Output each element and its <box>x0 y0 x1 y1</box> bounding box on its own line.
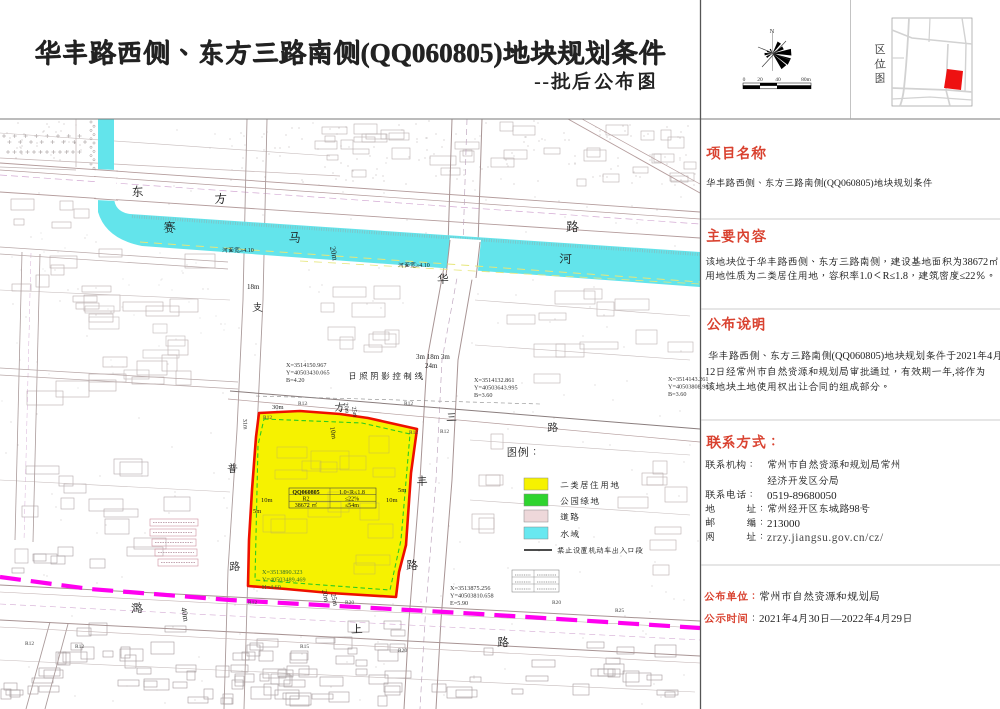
svg-text:R12: R12 <box>404 401 413 407</box>
svg-text:38672 ㎡: 38672 ㎡ <box>295 502 318 509</box>
svg-text:水域: 水域 <box>560 529 580 539</box>
svg-text:3m 18m 3m: 3m 18m 3m <box>416 353 450 361</box>
svg-text:公园绿地: 公园绿地 <box>560 496 600 506</box>
svg-text:X=3513875.256: X=3513875.256 <box>450 585 490 592</box>
svg-text:支: 支 <box>252 301 263 314</box>
svg-text:18m: 18m <box>247 283 260 291</box>
svg-text:Y=40503430.065: Y=40503430.065 <box>286 370 330 377</box>
svg-text:日照阴影控制线: 日照阴影控制线 <box>348 371 425 381</box>
svg-text:40: 40 <box>775 77 781 83</box>
svg-text:31m: 31m <box>241 419 248 430</box>
svg-text:东: 东 <box>131 184 144 199</box>
svg-text:潞: 潞 <box>131 601 143 615</box>
svg-text:河面宽≥4.10: 河面宽≥4.10 <box>222 246 254 254</box>
svg-text:区: 区 <box>874 42 886 56</box>
svg-text:H=4.60: H=4.60 <box>262 584 281 591</box>
svg-text:R12: R12 <box>409 430 418 436</box>
svg-text:R12: R12 <box>75 644 84 650</box>
svg-text:QQ060805: QQ060805 <box>292 490 319 496</box>
svg-text:R12: R12 <box>25 641 34 647</box>
svg-text:0: 0 <box>743 77 746 83</box>
svg-text:R20: R20 <box>398 648 407 654</box>
svg-text:X=3514143.261: X=3514143.261 <box>668 376 708 383</box>
svg-text:R20: R20 <box>345 600 354 606</box>
svg-text:河面宽≥4.10: 河面宽≥4.10 <box>398 261 430 269</box>
svg-text:25m: 25m <box>329 593 340 607</box>
svg-text:R2: R2 <box>302 497 309 503</box>
svg-text:R12: R12 <box>440 429 449 435</box>
svg-text:路: 路 <box>229 560 240 573</box>
svg-text:华: 华 <box>437 272 449 286</box>
svg-text:道路: 道路 <box>560 512 580 522</box>
svg-text:10m: 10m <box>261 497 273 504</box>
svg-text:R20: R20 <box>552 600 561 606</box>
svg-text:R12: R12 <box>298 401 307 407</box>
svg-text:B=3.60: B=3.60 <box>668 391 686 398</box>
svg-text:赛: 赛 <box>163 220 176 235</box>
svg-text:Y=40503810.658: Y=40503810.658 <box>450 593 494 600</box>
svg-text:方: 方 <box>214 191 227 206</box>
svg-text:三: 三 <box>446 412 457 424</box>
svg-text:24m: 24m <box>425 362 438 370</box>
svg-text:R12: R12 <box>263 415 272 421</box>
svg-text:上: 上 <box>351 622 363 636</box>
svg-text:R25: R25 <box>615 608 624 614</box>
svg-text:位: 位 <box>874 57 886 71</box>
svg-text:≤22%: ≤22% <box>345 497 359 503</box>
svg-text:二类居住用地: 二类居住用地 <box>560 480 620 490</box>
svg-text:20: 20 <box>757 77 763 83</box>
svg-text:路: 路 <box>497 635 509 649</box>
svg-text:R15: R15 <box>300 644 309 650</box>
svg-text:河: 河 <box>559 251 572 266</box>
svg-text:5m: 5m <box>253 508 261 515</box>
svg-text:B=4.20: B=4.20 <box>286 377 304 384</box>
svg-text:普: 普 <box>227 462 238 475</box>
svg-text:路: 路 <box>566 219 579 234</box>
svg-text:路: 路 <box>406 558 418 572</box>
svg-text:马: 马 <box>288 230 301 245</box>
svg-text:1.0<R≤1.8: 1.0<R≤1.8 <box>339 490 365 496</box>
svg-text:E=5.90: E=5.90 <box>450 600 468 607</box>
svg-text:图例：: 图例： <box>506 446 541 459</box>
svg-text:X=3514132.861: X=3514132.861 <box>474 377 514 384</box>
svg-text:丰: 丰 <box>416 474 428 488</box>
svg-text:Y=40503489.469: Y=40503489.469 <box>262 577 306 584</box>
svg-text:10m: 10m <box>386 497 398 504</box>
svg-text:30m: 30m <box>272 404 284 411</box>
svg-text:X=3513890.323: X=3513890.323 <box>262 569 302 576</box>
svg-text:X=3514150.967: X=3514150.967 <box>286 362 326 369</box>
svg-text:80m: 80m <box>801 77 812 83</box>
svg-text:图: 图 <box>874 71 886 85</box>
svg-text:B=3.60: B=3.60 <box>474 392 492 399</box>
svg-text:路: 路 <box>547 421 558 434</box>
svg-text:20m: 20m <box>320 589 331 603</box>
svg-text:禁止设置机动车出入口段: 禁止设置机动车出入口段 <box>557 546 643 555</box>
svg-text:R12: R12 <box>248 600 257 606</box>
svg-text:Y=40503643.995: Y=40503643.995 <box>474 385 518 392</box>
svg-text:40m: 40m <box>179 607 191 624</box>
svg-text:≤54m: ≤54m <box>345 503 359 509</box>
svg-text:5m: 5m <box>398 487 406 494</box>
svg-text:N: N <box>770 28 775 35</box>
